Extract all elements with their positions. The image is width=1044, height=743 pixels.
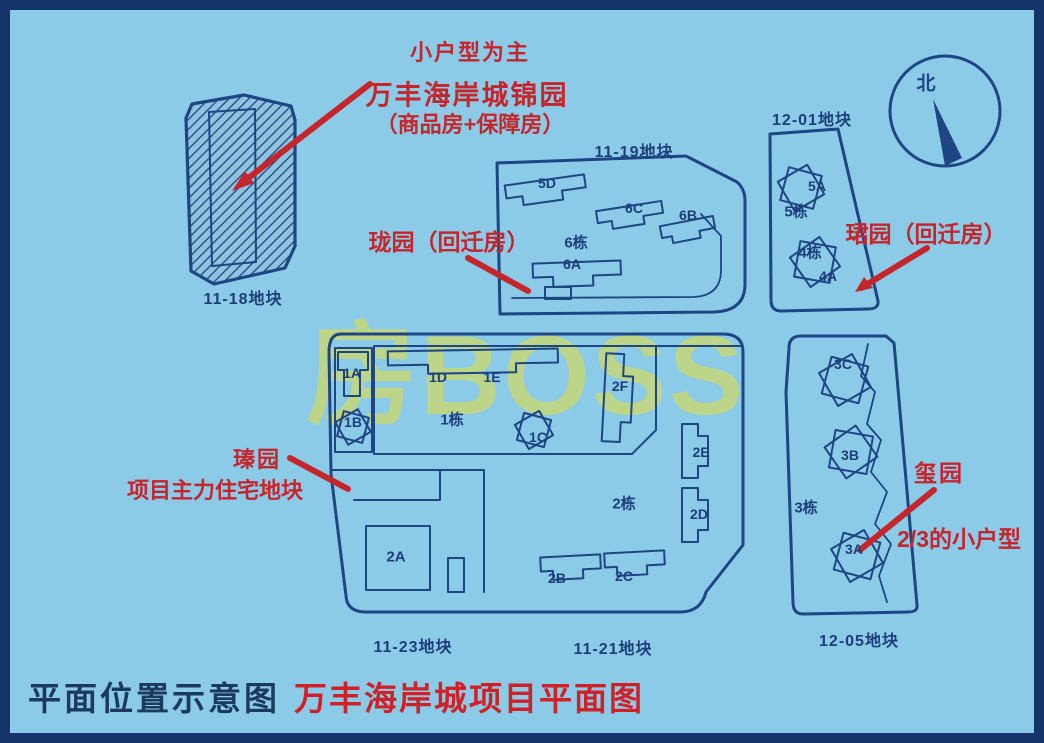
building-label-2e: 2E (692, 444, 709, 460)
building-label-2d: 2D (690, 506, 708, 522)
plot-label-11-21: 11-21地块 (573, 635, 652, 659)
building-label-2dong: 2栋 (612, 493, 635, 514)
building-label-1d: 1D (429, 369, 447, 385)
caption-row: 平面位置示意图 万丰海岸城项目平面图 (28, 672, 644, 720)
building-label-4a: 4A (819, 268, 837, 284)
plot-11-18-hatched-block (186, 95, 295, 284)
plot-label-11-23: 11-23地块 (373, 633, 452, 657)
site-plan-image: 房BOSS (0, 0, 1044, 743)
building-label-2f: 2F (612, 378, 628, 394)
building-label-3a: 3A (845, 541, 863, 557)
building-label-2b: 2B (548, 570, 566, 586)
building-label-1b: 1B (344, 414, 362, 430)
building-label-2a: 2A (386, 549, 405, 566)
building-label-3dong: 3栋 (794, 497, 817, 518)
building-label-3b: 3B (841, 447, 859, 463)
building-label-5a: 5A (808, 178, 826, 194)
building-label-1dong: 1栋 (440, 409, 463, 430)
plot-12-05-outline (786, 336, 917, 614)
annotation-zhenyuan-sub: 项目主力住宅地块 (127, 473, 303, 505)
compass-icon (890, 56, 1000, 166)
annotation-xiyuan-sub: 2/3的小户型 (897, 520, 1021, 554)
building-label-3c: 3C (834, 356, 852, 372)
plot-label-11-18: 11-18地块 (203, 285, 282, 309)
annotation-zhenyuan: 瑧园 (233, 442, 281, 474)
building-label-6dong: 6栋 (564, 232, 587, 253)
building-label-4dong: 4栋 (798, 242, 821, 263)
building-label-6a: 6A (563, 256, 581, 272)
plot-label-12-01: 12-01地块 (772, 106, 852, 130)
building-label-6b: 6B (679, 207, 697, 223)
caption-project-title: 万丰海岸城项目平面图 (294, 672, 644, 720)
annotation-jinyuan-line1: 小户型为主 (410, 35, 530, 67)
plot-11-19-outline (497, 156, 745, 314)
building-label-6c: 6C (625, 200, 643, 216)
caption-plan-title: 平面位置示意图 (28, 672, 280, 720)
plot-11-21-outline (329, 334, 743, 612)
annotation-longyuan: 珑园（回迁房） (369, 223, 530, 257)
building-label-5d: 5D (538, 175, 556, 191)
building-label-1c: 1C (529, 429, 547, 445)
building-label-1e: 1E (483, 369, 500, 385)
building-label-2c: 2C (615, 568, 633, 584)
building-label-1a: 1A (343, 365, 361, 381)
annotation-xiyuan: 玺园 (914, 454, 964, 488)
annotation-jinyuan-line3: （商品房+保障房） (376, 107, 565, 139)
plot-label-11-19: 11-19地块 (594, 138, 673, 162)
north-label: 北 (916, 69, 935, 96)
building-label-5dong: 5栋 (784, 201, 807, 222)
red-leader-lines (242, 84, 934, 550)
plot-label-12-05: 12-05地块 (819, 627, 899, 651)
annotation-junyuan: 珺园（回迁房） (846, 215, 1007, 249)
